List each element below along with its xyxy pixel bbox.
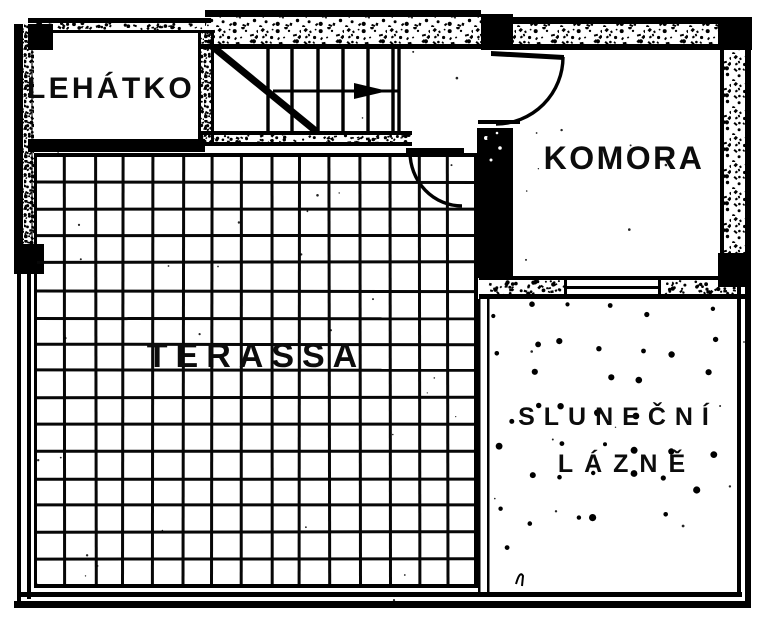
svg-text:KOMORA: KOMORA <box>544 140 705 176</box>
svg-text:SLUNEČNÍ: SLUNEČNÍ <box>518 401 718 431</box>
svg-text:LÁZNĚ: LÁZNĚ <box>558 448 696 478</box>
svg-text:LEHÁTKO: LEHÁTKO <box>27 71 195 105</box>
svg-text:TERASSA: TERASSA <box>147 337 365 375</box>
